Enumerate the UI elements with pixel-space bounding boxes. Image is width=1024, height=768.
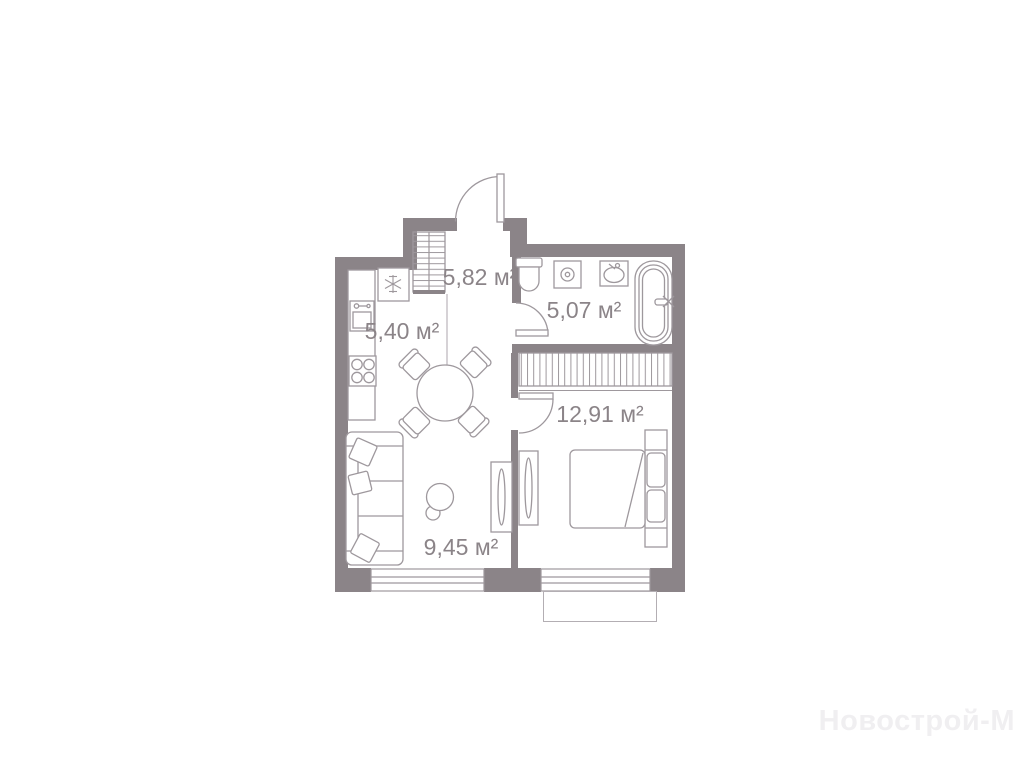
burner-icon bbox=[364, 359, 374, 369]
wall-vestibule-top bbox=[403, 218, 457, 231]
entrance-door-swing-arc bbox=[456, 177, 501, 222]
tv-unit-bedroom bbox=[519, 451, 538, 525]
bedroom-window bbox=[541, 569, 650, 591]
living-window bbox=[371, 569, 484, 591]
wall-bottom-pier bbox=[484, 568, 541, 592]
bathroom-door-leaf bbox=[516, 330, 548, 336]
entrance-door bbox=[456, 174, 505, 222]
room-label-living-room: 9,45 м² bbox=[424, 534, 499, 560]
kitchen-fixtures bbox=[348, 268, 409, 420]
wall-bathroom-bottom bbox=[512, 344, 672, 353]
bedroom-door bbox=[519, 393, 553, 433]
tv-screen bbox=[498, 469, 505, 525]
dining-set bbox=[398, 346, 493, 440]
room-label-bathroom: 5,07 м² bbox=[547, 297, 622, 323]
room-label-kitchen: 5,40 м² bbox=[365, 318, 440, 344]
floor-plan-page: 5,82 м² 5,40 м² 5,07 м² 12,91 м² 9,45 м²… bbox=[0, 0, 1024, 768]
bathroom-sink bbox=[600, 261, 628, 286]
toilet bbox=[516, 258, 542, 291]
burner-icon bbox=[364, 372, 374, 382]
pillow bbox=[348, 471, 372, 495]
wall-bathroom-top bbox=[514, 244, 685, 257]
hall-wardrobe-base bbox=[413, 290, 445, 294]
faucet-icon bbox=[354, 304, 358, 308]
sofa bbox=[346, 432, 403, 565]
tv-unit-living bbox=[491, 462, 512, 532]
bathtub bbox=[635, 261, 674, 345]
bed bbox=[570, 430, 667, 547]
bathroom-door bbox=[516, 303, 548, 336]
balcony bbox=[544, 592, 657, 622]
bedroom-wardrobe bbox=[519, 353, 672, 386]
pillow bbox=[647, 453, 665, 487]
room-label-bedroom: 12,91 м² bbox=[556, 401, 644, 427]
wall-bottom-left-block bbox=[335, 568, 371, 592]
entrance-door-leaf bbox=[497, 174, 504, 222]
room-label-hallway: 5,82 м² bbox=[443, 264, 518, 290]
wall-partition-upper bbox=[511, 353, 518, 398]
burner-icon bbox=[352, 359, 362, 369]
wall-bottom-right-block bbox=[650, 568, 685, 592]
tv-screen bbox=[525, 458, 532, 518]
bedroom-door-swing-arc bbox=[519, 399, 553, 433]
burner-icon bbox=[352, 372, 362, 382]
pillow bbox=[647, 490, 665, 522]
stove bbox=[349, 356, 376, 386]
dining-table bbox=[417, 365, 473, 421]
headboard bbox=[645, 430, 667, 547]
bedroom-door-leaf bbox=[519, 393, 553, 399]
floor-plan: 5,82 м² 5,40 м² 5,07 м² 12,91 м² 9,45 м² bbox=[0, 0, 1024, 768]
kitchen-counter bbox=[348, 270, 375, 420]
hallway-fixtures bbox=[413, 232, 447, 366]
basin-icon bbox=[604, 268, 624, 283]
bedroom-fixtures bbox=[519, 353, 672, 547]
developer-watermark: Новострой-М bbox=[795, 705, 1015, 738]
floor-lamp bbox=[426, 484, 454, 521]
washing-machine bbox=[554, 261, 581, 288]
